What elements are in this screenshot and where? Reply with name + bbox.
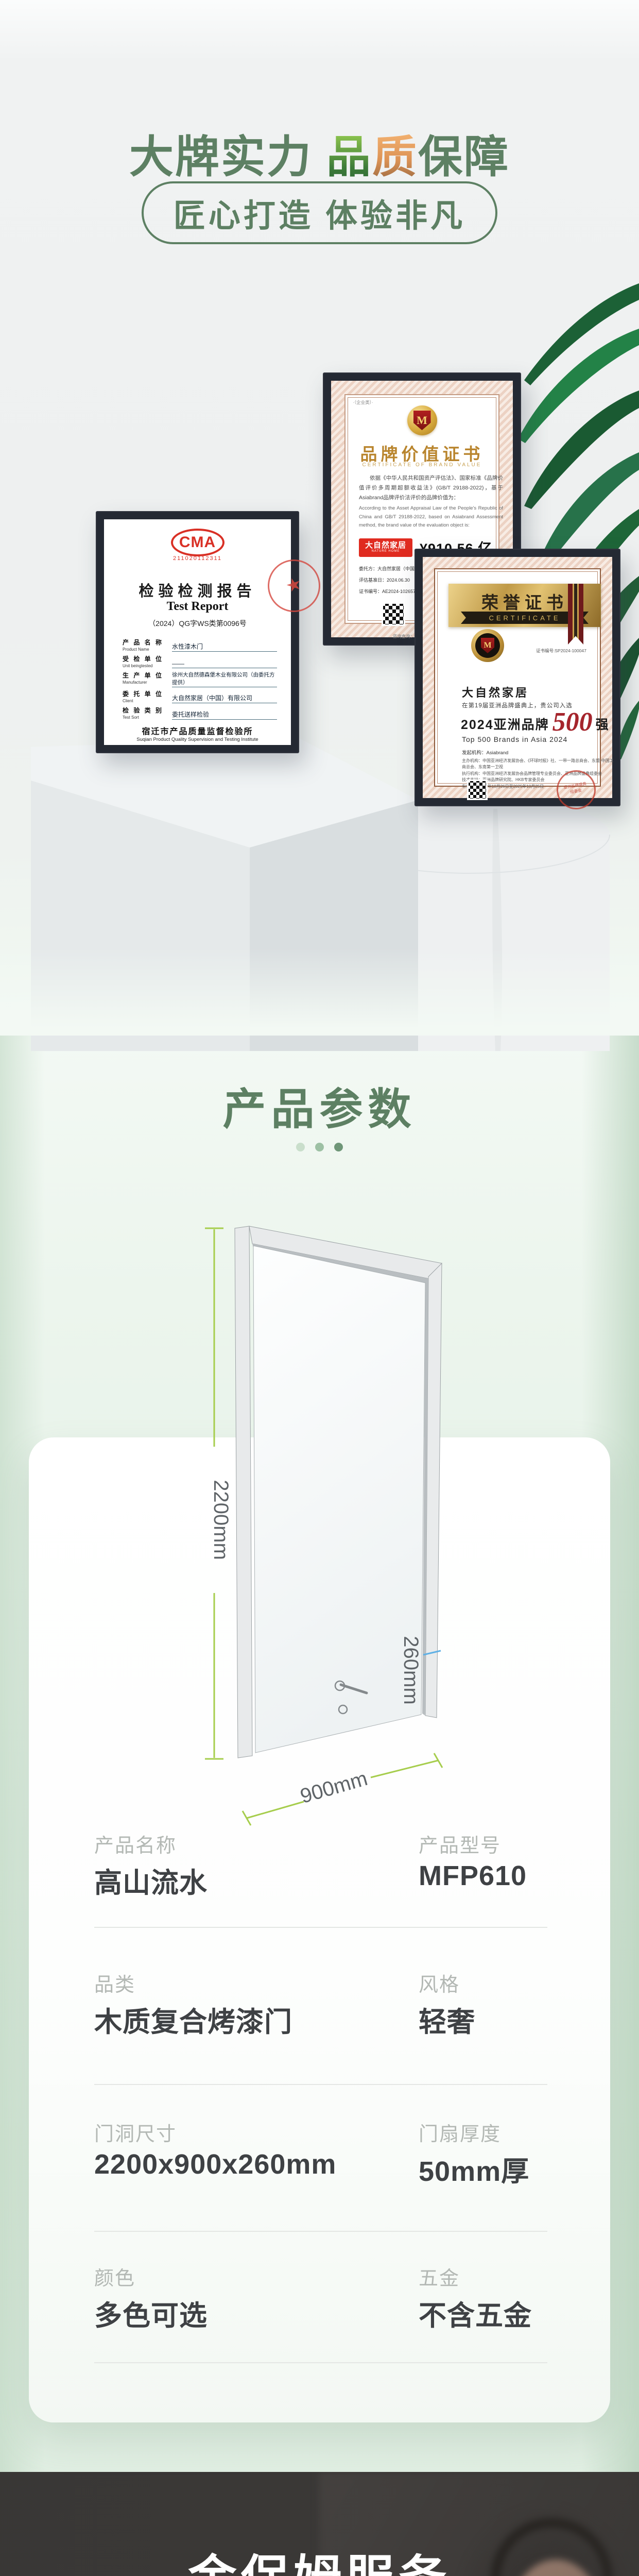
param-value: 轻奢	[419, 1999, 475, 2040]
hero-subtitle-text: 匠心打造 体验非凡	[142, 181, 497, 244]
qr-code	[467, 779, 488, 800]
brand-cert-title: 品牌价值证书	[346, 440, 498, 465]
test-report-field: 生 产 单 位Manufacturer 徐州大自然德森堡木业有限公司（由委托方提…	[123, 671, 277, 687]
param-value: 多色可选	[94, 2293, 208, 2333]
dot-dark	[334, 1143, 343, 1151]
brand-cert-paragraph-en: According to the Asset Appraisal Law of …	[359, 504, 503, 530]
test-report-title: 检验检测报告	[104, 579, 291, 601]
service-title: 金保姆服务	[0, 2539, 639, 2576]
honor-cert-number: 证书编号:SP2024-100047	[536, 648, 586, 654]
test-report-field: 受 检 单 位Unit beingtested ——	[123, 654, 277, 668]
headline-prefix: 2024亚洲品牌	[461, 715, 549, 733]
param-value: 高山流水	[94, 1860, 208, 1901]
medal-letter: M	[481, 638, 494, 653]
hero-subtitle-pill: 匠心打造 体验非凡	[0, 181, 639, 244]
param-label: 五金	[419, 2262, 460, 2291]
product-detail-poster: 大牌实力 品质保障 匠心打造 体验非凡 CMA 211020112311 检验检…	[0, 0, 639, 2576]
field-value: 委托送样检验	[172, 710, 277, 720]
medal-letter: M	[413, 411, 431, 430]
certificate-honor: 荣誉证书 CERTIFICATE M 证书编号:SP2024-100047 大自…	[415, 549, 620, 806]
param-value: 50mm厚	[419, 2148, 529, 2189]
nature-home-logo: 大自然家居 NATURE HOME	[359, 538, 412, 557]
honor-cert-core: 荣誉证书 CERTIFICATE M 证书编号:SP2024-100047 大自…	[434, 568, 601, 787]
field-value: 大自然家居（中国）有限公司	[172, 693, 277, 703]
field-label: 产 品 名 称	[123, 638, 172, 647]
cma-number: 211020112311	[104, 555, 291, 562]
divider	[94, 2231, 547, 2232]
divider	[94, 1927, 547, 1928]
height-dimension-label: 2200mm	[210, 1480, 232, 1560]
field-label-en: Product Name	[123, 647, 169, 652]
honor-sponsor: 发起机构：Asiabrand	[462, 749, 508, 756]
test-org: 宿迁市产品质量监督检验所	[104, 724, 291, 737]
param-value: 不含五金	[419, 2293, 532, 2333]
field-label-en: Client	[123, 698, 169, 703]
test-report-field: 委 托 单 位Client 大自然家居（中国）有限公司	[123, 689, 277, 703]
param-value: MFP610	[419, 1860, 527, 1892]
brand-cert-paragraph-cn: 依据《中华人民共和国资产评估法》、国家标准《品牌价值评价多周期超额收益法》(GB…	[359, 473, 503, 503]
honor-headline: 2024亚洲品牌 500 强	[461, 711, 615, 733]
logo-cn: 大自然家居	[365, 541, 406, 550]
param-label: 门扇厚度	[419, 2118, 501, 2146]
hero-title-seg4: 保障	[418, 132, 510, 182]
field-label: 委 托 单 位	[123, 689, 172, 698]
dot-medium	[315, 1143, 324, 1151]
brand-medal-icon: M	[407, 405, 437, 435]
qr-code	[382, 602, 405, 626]
test-report-field: 产 品 名 称Product Name 水性漆木门	[123, 638, 277, 652]
field-label: 检 验 类 别	[123, 706, 172, 715]
param-label: 品类	[94, 1969, 135, 1997]
seal-star: ★	[283, 573, 304, 597]
detail-line: 主办机构：中国亚洲经济发展协会、《环球时报》社、一带一路总商会、东盟-中国工商总…	[462, 758, 616, 771]
depth-dimension-label: 260mm	[400, 1636, 422, 1704]
hero-title-seg3: 质	[372, 132, 418, 182]
field-value: 徐州大自然德森堡木业有限公司（由委托方提供）	[172, 671, 277, 687]
honor-headline-en: Top 500 Brands in Asia 2024	[462, 735, 567, 743]
cma-logo: CMA	[171, 529, 224, 556]
field-label-en: Unit beingtested	[123, 663, 169, 668]
certificate-test-report: CMA 211020112311 检验检测报告 Test Report （202…	[96, 511, 299, 753]
cert-class-tag: ·（企业类）·	[353, 399, 373, 405]
hero-title-seg1: 大牌实力	[129, 132, 326, 182]
param-label: 颜色	[94, 2262, 135, 2291]
brand-cert-subtitle: CERTIFICATE OF BRAND VALUE	[346, 462, 498, 468]
param-value: 木质复合烤漆门	[94, 1999, 292, 2040]
field-value: 水性漆木门	[172, 642, 277, 652]
headline-suffix: 强	[596, 715, 610, 733]
field-label: 受 检 单 位	[123, 654, 172, 663]
honor-brand-name: 大自然家居	[462, 684, 529, 700]
test-report-paper: CMA 211020112311 检验检测报告 Test Report （202…	[104, 519, 291, 745]
params-section-title: 产品参数	[0, 1075, 639, 1137]
seal-text: 亚洲品牌盛典组委会	[561, 781, 590, 796]
param-label: 产品名称	[94, 1829, 177, 1858]
divider	[94, 2084, 547, 2085]
test-org-en: Suqian Product Quality Supervision and T…	[104, 737, 291, 742]
width-dimension-label: 900mm	[298, 1767, 370, 1808]
title-dots	[0, 1143, 639, 1151]
field-value: ——	[172, 660, 277, 668]
logo-en: NATURE HOME	[372, 550, 400, 553]
hero-title: 大牌实力 品质保障	[0, 121, 639, 185]
test-report-number: （2024）QG字WS类第0096号	[104, 618, 291, 629]
param-label: 风格	[419, 1969, 460, 1997]
hero-title-seg2: 品	[326, 132, 372, 182]
field-label-en: Manufacturer	[123, 680, 169, 685]
dot-light	[296, 1143, 305, 1151]
detail-line: 执行机构：中国亚洲经济发展协会品牌管理专业委员会、亚洲品牌盛典组委会	[462, 771, 616, 777]
field-label-en: Test Sort	[123, 715, 169, 720]
honor-cert-paper: 荣誉证书 CERTIFICATE M 证书编号:SP2024-100047 大自…	[423, 557, 612, 798]
param-value: 2200x900x260mm	[94, 2148, 336, 2180]
param-label: 门洞尺寸	[94, 2118, 177, 2146]
field-label: 生 产 单 位	[123, 671, 172, 680]
test-report-subtitle: Test Report	[104, 600, 291, 614]
door-dimension-diagram: 2200mm 260mm 900mm	[196, 1216, 463, 1839]
honor-medal-icon: M	[471, 629, 504, 662]
divider	[94, 2362, 547, 2363]
floor-fade	[0, 948, 639, 1036]
ribbon-decoration	[568, 584, 583, 645]
headline-500: 500	[552, 711, 593, 733]
test-report-field: 检 验 类 别Test Sort 委托送样检验	[123, 706, 277, 720]
